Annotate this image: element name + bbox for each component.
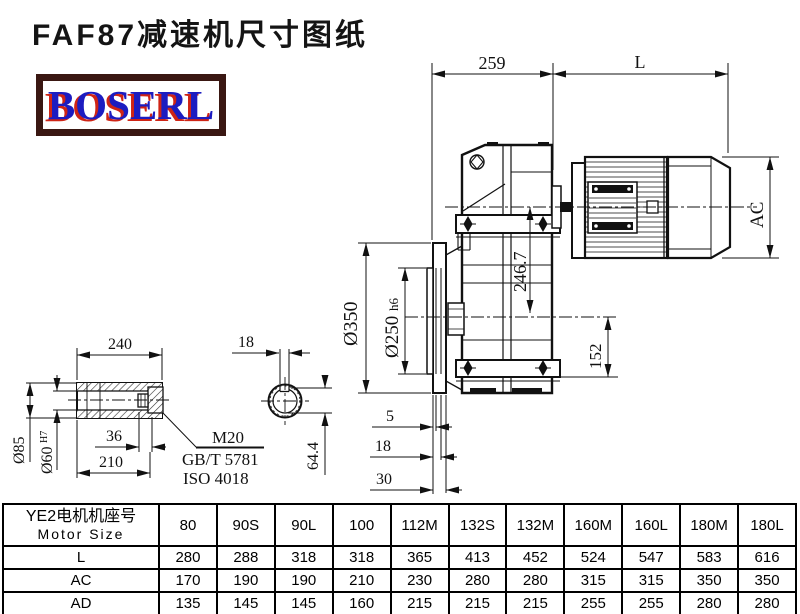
column-header: 112M bbox=[391, 504, 449, 546]
terminal-box bbox=[588, 182, 637, 233]
extension-lines bbox=[26, 63, 779, 494]
dim-d85: Ø85 bbox=[11, 436, 28, 464]
motor-size-table: YE2电机机座号 Motor Size 80 90S 90L 100 112M … bbox=[2, 503, 797, 614]
motor-size-header-en: Motor Size bbox=[4, 526, 158, 542]
row-label: AD bbox=[3, 592, 159, 614]
column-header: 132M bbox=[506, 504, 564, 546]
cell: 280 bbox=[506, 569, 564, 592]
column-header: 160M bbox=[564, 504, 622, 546]
dimension-labels: 259 L AC Ø350 Ø250 h6 246.7 152 5 18 30 … bbox=[11, 52, 768, 488]
motor-size-header: YE2电机机座号 Motor Size bbox=[3, 504, 159, 546]
cell: 616 bbox=[738, 546, 796, 569]
dim-210: 210 bbox=[99, 454, 123, 471]
hollow-shaft-detail bbox=[77, 383, 163, 418]
cell: 350 bbox=[680, 569, 738, 592]
column-header: 160L bbox=[622, 504, 680, 546]
column-header: 100 bbox=[333, 504, 391, 546]
cell: 280 bbox=[159, 546, 217, 569]
dim-36: 36 bbox=[106, 428, 122, 445]
dim-ac: AC bbox=[747, 202, 768, 228]
dim-d60: Ø60 bbox=[39, 446, 56, 474]
dim-d250h6: Ø250 h6 bbox=[382, 298, 403, 359]
cell: 452 bbox=[506, 546, 564, 569]
cell: 318 bbox=[333, 546, 391, 569]
cell: 170 bbox=[159, 569, 217, 592]
cell: 255 bbox=[564, 592, 622, 614]
column-header: 180M bbox=[680, 504, 738, 546]
dim-5: 5 bbox=[386, 408, 394, 425]
dim-18-flange: 18 bbox=[375, 438, 391, 455]
cell: 288 bbox=[217, 546, 275, 569]
cell: 190 bbox=[275, 569, 333, 592]
row-label: AC bbox=[3, 569, 159, 592]
dim-l: L bbox=[635, 52, 646, 72]
note-iso: ISO 4018 bbox=[183, 469, 249, 488]
dim-30: 30 bbox=[376, 471, 392, 488]
dim-259: 259 bbox=[479, 53, 506, 73]
cell: 230 bbox=[391, 569, 449, 592]
cell: 315 bbox=[564, 569, 622, 592]
cell: 145 bbox=[275, 592, 333, 614]
cell: 583 bbox=[680, 546, 738, 569]
fan-cowl bbox=[668, 157, 730, 258]
dimension-drawing: 259 L AC Ø350 Ø250 h6 246.7 152 5 18 30 … bbox=[0, 0, 800, 503]
dim-18-key: 18 bbox=[238, 334, 254, 351]
dim-d60-tol: H7 bbox=[39, 431, 50, 443]
column-header: 90L bbox=[275, 504, 333, 546]
cell: 524 bbox=[564, 546, 622, 569]
motor-size-header-cn: YE2电机机座号 bbox=[4, 508, 158, 526]
cell: 215 bbox=[449, 592, 507, 614]
column-header: 132S bbox=[449, 504, 507, 546]
cell: 315 bbox=[622, 569, 680, 592]
row-label: L bbox=[3, 546, 159, 569]
dim-240: 240 bbox=[108, 336, 132, 353]
dim-d250: Ø250 bbox=[382, 316, 403, 358]
cell: 255 bbox=[622, 592, 680, 614]
cell: 280 bbox=[680, 592, 738, 614]
cell: 210 bbox=[333, 569, 391, 592]
cell: 280 bbox=[449, 569, 507, 592]
cell: 413 bbox=[449, 546, 507, 569]
drawing-sheet: FAF87减速机尺寸图纸 BOSERL bbox=[0, 0, 800, 614]
dimension-lines bbox=[30, 74, 770, 490]
cell: 350 bbox=[738, 569, 796, 592]
dim-64-4: 64.4 bbox=[305, 442, 322, 470]
dim-246-7: 246.7 bbox=[510, 252, 530, 293]
eyebolt-icon bbox=[470, 155, 484, 169]
cell: 215 bbox=[506, 592, 564, 614]
dim-152: 152 bbox=[586, 344, 605, 370]
column-header: 90S bbox=[217, 504, 275, 546]
cell: 145 bbox=[217, 592, 275, 614]
gearbox-housing bbox=[456, 142, 560, 393]
table-row-AD: AD 135 145 145 160 215 215 215 255 255 2… bbox=[3, 592, 796, 614]
column-header: 80 bbox=[159, 504, 217, 546]
dim-d250-tol: h6 bbox=[386, 298, 401, 312]
cell: 547 bbox=[622, 546, 680, 569]
cell: 365 bbox=[391, 546, 449, 569]
motor bbox=[552, 157, 730, 258]
table-header-row: YE2电机机座号 Motor Size 80 90S 90L 100 112M … bbox=[3, 504, 796, 546]
table-row-L: L 280 288 318 318 365 413 452 524 547 58… bbox=[3, 546, 796, 569]
cell: 135 bbox=[159, 592, 217, 614]
cell: 190 bbox=[217, 569, 275, 592]
dim-d60h7: Ø60 H7 bbox=[39, 431, 56, 474]
cell: 280 bbox=[738, 592, 796, 614]
note-gb: GB/T 5781 bbox=[182, 450, 259, 469]
cell: 160 bbox=[333, 592, 391, 614]
table-row-AC: AC 170 190 190 210 230 280 280 315 315 3… bbox=[3, 569, 796, 592]
cell: 318 bbox=[275, 546, 333, 569]
column-header: 180L bbox=[738, 504, 796, 546]
dim-d350: Ø350 bbox=[340, 302, 362, 346]
cell: 215 bbox=[391, 592, 449, 614]
note-m20: M20 bbox=[212, 428, 244, 447]
